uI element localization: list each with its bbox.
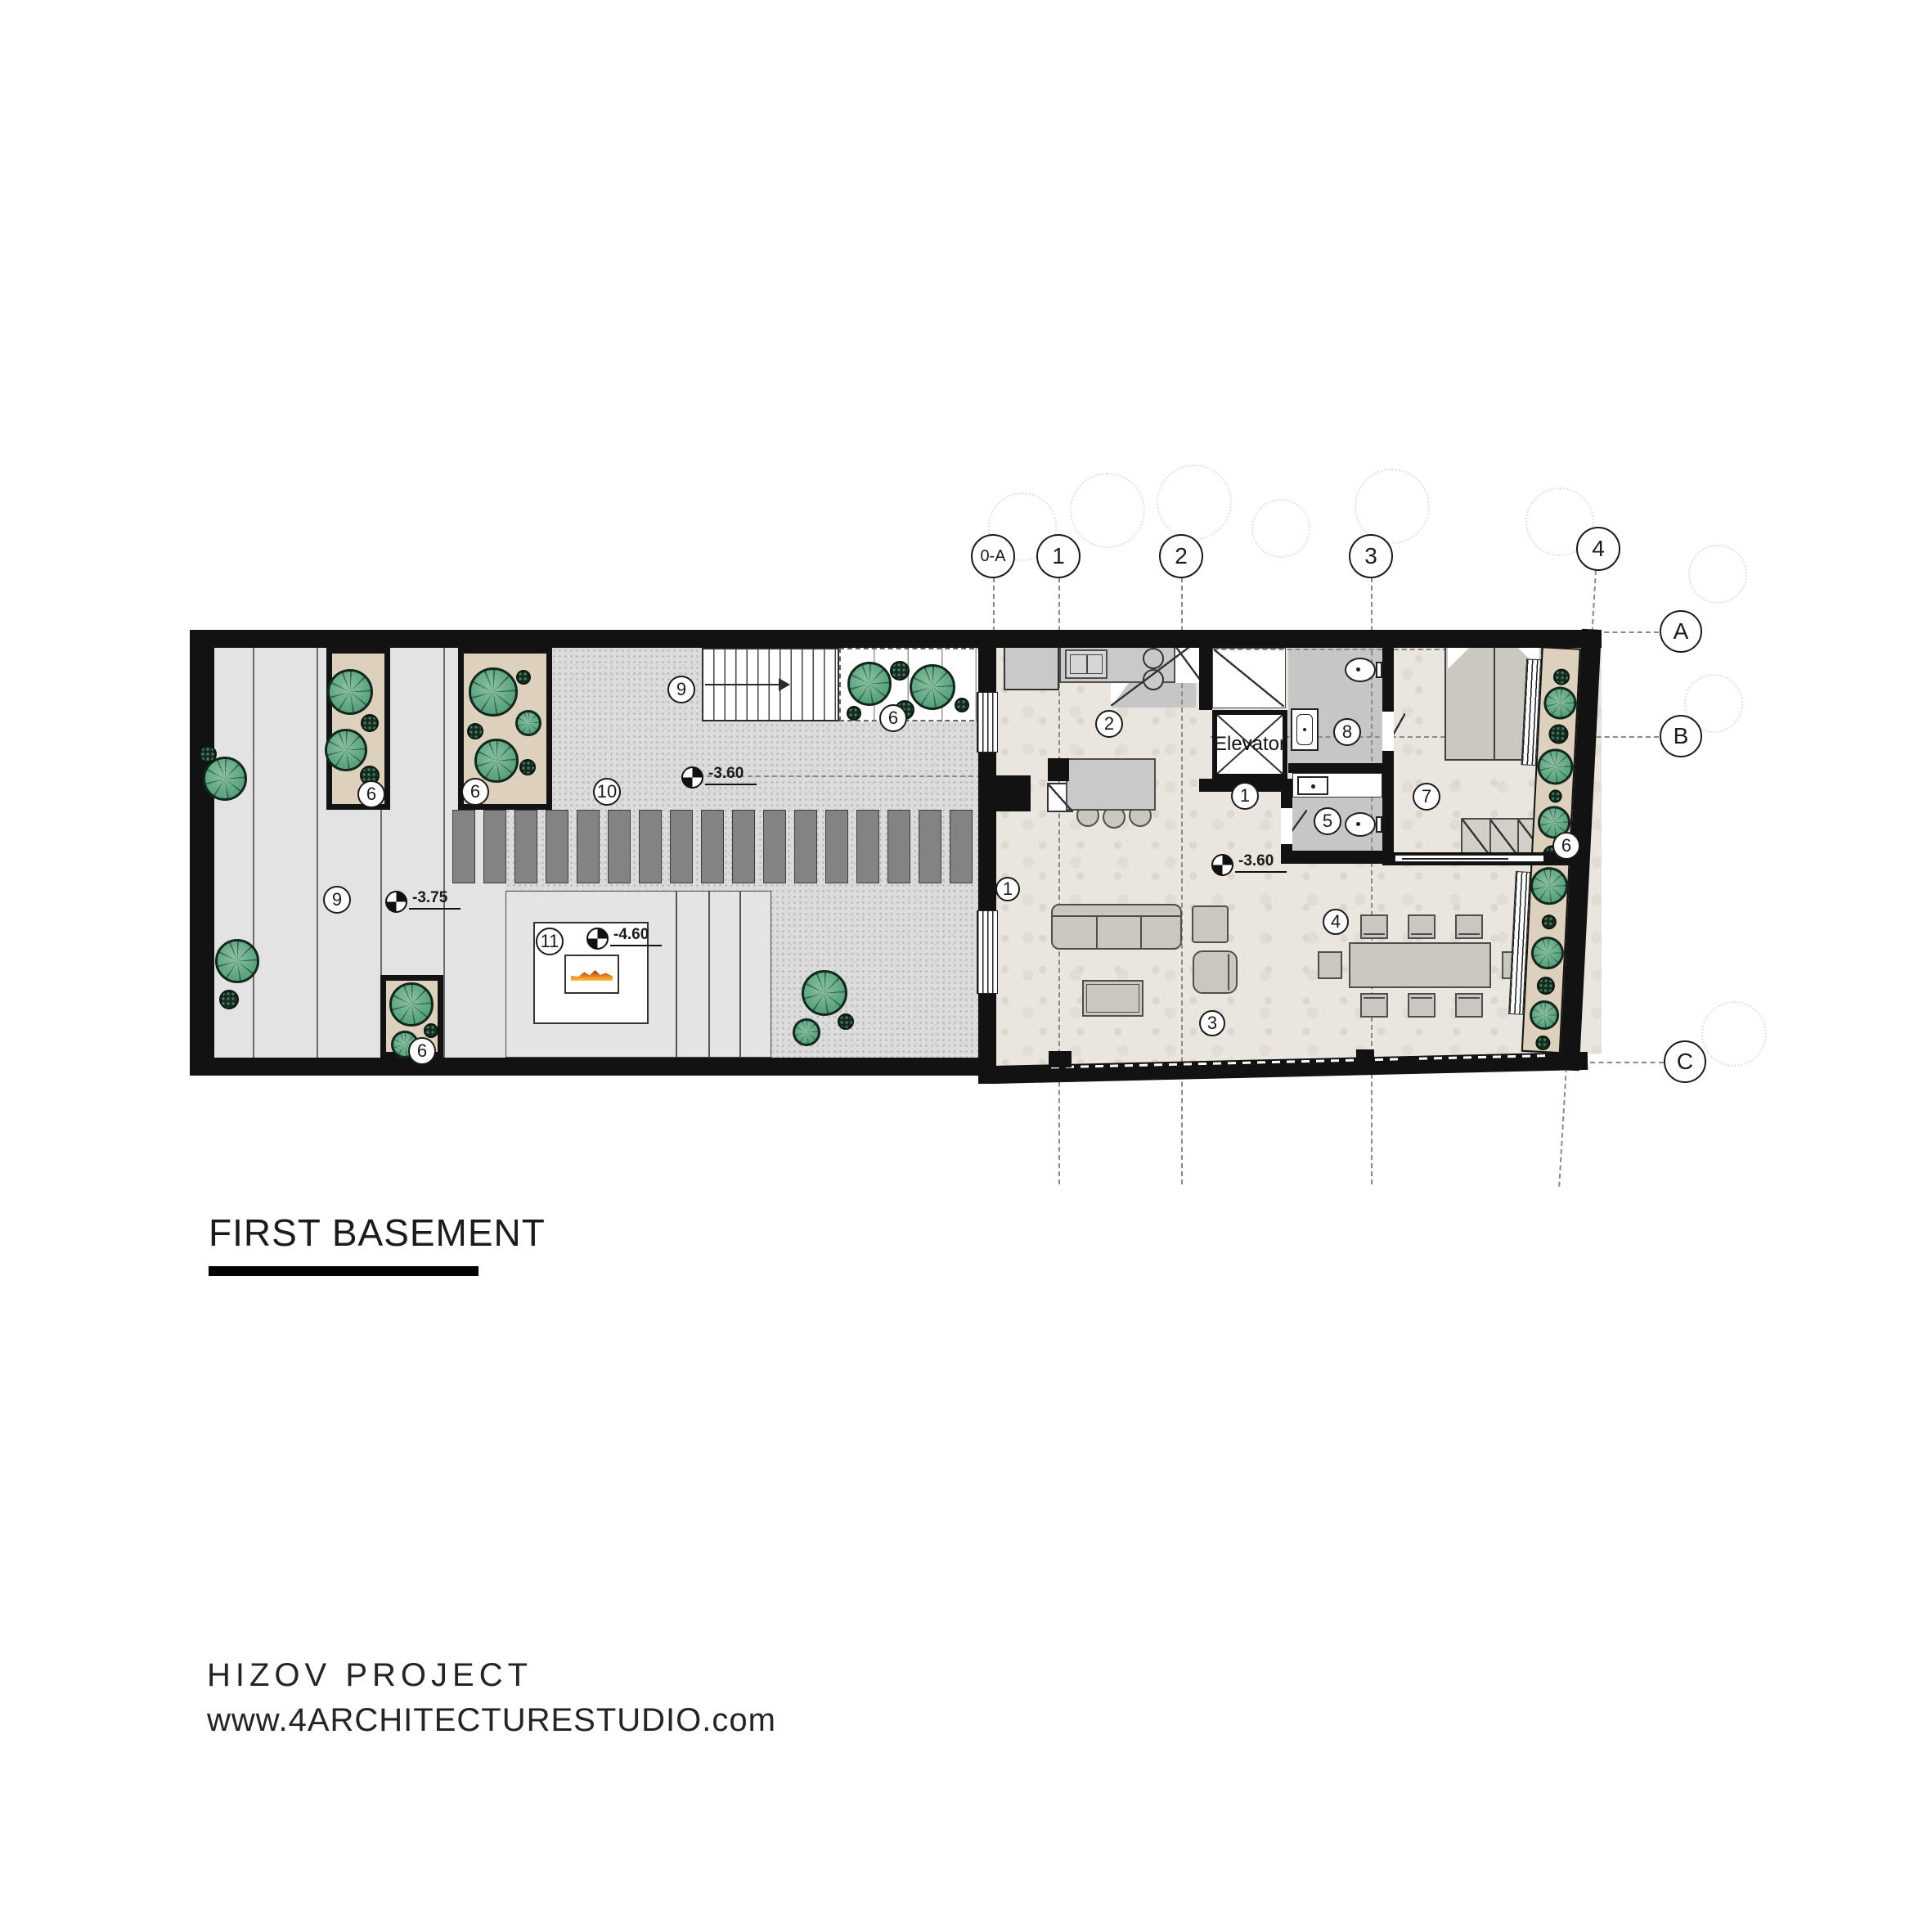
bush-icon [219,990,239,1009]
grid-bubble-right-A: A [1660,610,1702,653]
bush-icon [1548,724,1569,744]
ghost-tree-outline [1701,1001,1767,1067]
deck-bar [701,810,724,883]
terrace-strip-separator-0 [253,648,254,1058]
dining-chair-end-left [1318,951,1342,979]
footer-block: HIZOV PROJECT www.4ARCHITECTURESTUDIO.co… [207,1657,776,1739]
deck-bar [763,810,786,883]
bush-icon [1535,1036,1551,1051]
ghost-tree-outline [1251,499,1310,558]
stairs-direction-arrow [779,678,790,691]
area-label-wc: 5 [1314,807,1341,835]
deck-bar [514,810,537,883]
elevation-target-icon [681,766,703,789]
bush-icon [955,698,969,712]
bush-icon [519,759,536,775]
deck-bar [919,810,941,883]
area-label-planter-5: 6 [1552,832,1580,860]
deck-bar [483,810,506,883]
bush-icon [1548,789,1562,803]
dining-chair-top-3 [1455,914,1483,939]
tree-icon [1529,1000,1560,1031]
deck-bar [825,810,848,883]
terrace-window [977,692,998,753]
elevation-target-icon [1211,854,1233,876]
area-label-living: 3 [1199,1010,1225,1036]
terrace-strip-separator-3 [443,648,445,1058]
area-label-planter-3: 6 [408,1037,436,1065]
grid-bubble-top-0-A: 0-A [971,534,1015,578]
elevation-value-walkway: -3.75 [409,889,461,910]
area-label-kitchen: 2 [1095,710,1123,738]
deck-bar [452,810,475,883]
armchair-2 [1193,950,1238,994]
tree-icon [327,669,373,715]
elevation-value-living: -3.60 [1235,852,1287,873]
island-column [1048,758,1069,781]
dining-chair-top-1 [1360,914,1388,939]
bush-icon [1541,914,1557,930]
wc-door-gap [1281,808,1292,844]
elevation-value-fire-lounge: -4.60 [610,926,662,946]
dining-chair-bottom-2 [1408,993,1436,1018]
terrace-strip-separator-1 [317,648,318,1058]
tree-icon [474,739,519,783]
dining-chair-top-2 [1408,914,1436,939]
elevation-marker-fire-lounge: -4.60 [586,928,662,950]
toilet-icon-bath8 [1345,658,1382,682]
area-label-walkway: 9 [323,886,351,914]
deck-bar [732,810,755,883]
platform-step-line-1 [708,891,710,1058]
bush-icon [1553,668,1570,685]
area-label-planter-2: 6 [461,778,489,806]
diagonal-mark-1 [1214,649,1284,707]
dining-table [1349,942,1491,988]
tree-icon [910,664,955,710]
grid-bubble-top-3: 3 [1349,534,1393,578]
tree-icon [203,757,247,801]
elevation-marker-living: -3.60 [1211,854,1287,876]
area-label-garden-stairs: 9 [667,676,695,703]
ghost-tree-outline [1688,545,1747,604]
area-label-planter-1: 6 [357,780,385,808]
ghost-tree-outline [1355,469,1430,544]
outdoor-bottom-wall [190,1058,995,1076]
title-underline [209,1266,479,1276]
bush-icon [1536,977,1555,995]
tree-icon [802,970,847,1016]
platform-step-line-2 [739,891,741,1058]
area-label-gravel-court: 10 [593,778,621,806]
sink-icon-wc5 [1297,776,1328,795]
elevation-value-court: -3.60 [705,765,757,785]
deck-bar [577,810,600,883]
elevation-marker-walkway: -3.75 [385,891,461,913]
page-title: FIRST BASEMENT [209,1211,546,1255]
wc-bottom-wall [1281,851,1382,864]
armchair-1 [1192,905,1229,943]
drawing-title-block: FIRST BASEMENT [209,1211,546,1276]
toilet-icon-wc5 [1345,812,1382,837]
coffee-table [1082,980,1143,1017]
window-wall-pier-0 [1049,1051,1072,1067]
area-label-hall: 1 [1231,782,1259,810]
grid-bubble-right-C: C [1664,1040,1706,1083]
area-label-fire-lounge: 11 [536,928,564,955]
dining-chair-bottom-1 [1360,993,1388,1018]
tree-icon [847,662,892,706]
floor-plan-canvas: Elevator [0,0,1932,1932]
tree-icon [515,710,541,736]
deck-bar [950,810,973,883]
deck-bar [794,810,817,883]
grid-bubble-top-4: 4 [1576,527,1620,571]
elevation-marker-court: -3.60 [681,766,757,789]
area-label-bedroom: 7 [1413,783,1440,811]
bedroom-sliding-door [1395,855,1544,862]
deck-bar [639,810,662,883]
diagonal-mark-4 [1462,820,1489,854]
studio-website: www.4ARCHITECTURESTUDIO.com [207,1702,776,1739]
left-wall [190,630,214,1076]
area-label-entry-door: 1 [995,877,1020,901]
grid-bubble-top-2: 2 [1159,534,1203,578]
grid-line-horizontal-3 [1590,1062,1664,1063]
ghost-tree-outline [1157,465,1232,540]
bush-icon [199,745,217,763]
platform-step-line-0 [676,891,677,1058]
bush-icon [361,714,379,732]
kitchen-sink [1065,649,1108,679]
kitchen-island [1066,758,1156,811]
pillow-fold-left [1448,648,1469,669]
sofa [1051,904,1182,950]
bush-icon [424,1023,438,1038]
grid-line-vertical-0 [993,577,995,631]
elevation-target-icon [586,928,609,950]
deck-bar [670,810,693,883]
diagonal-mark-2 [1111,642,1196,706]
terrace-sliding-door [977,910,998,994]
sink-icon-bath8 [1291,708,1319,751]
area-label-planter-4: 6 [879,704,907,732]
deck-bar [546,810,568,883]
grid-bubble-right-B: B [1660,715,1702,757]
tree-icon [1536,748,1574,785]
grid-bubble-top-1: 1 [1036,534,1081,578]
deck-bar [608,810,631,883]
bush-icon [847,706,861,721]
bush-icon [890,661,910,681]
tree-icon [793,1018,820,1046]
deck-bar [856,810,879,883]
area-label-bath: 8 [1333,718,1361,746]
window-wall-pier-1 [1356,1049,1374,1064]
tree-icon [325,729,367,771]
bath-wc-divider [1288,763,1382,773]
diagonal-mark-3 [1047,783,1073,812]
bush-icon [467,723,483,739]
tree-icon [215,939,259,983]
refrigerator [1004,643,1059,690]
divider-column [978,775,1031,811]
tree-icon [1543,686,1577,721]
bush-icon [516,670,531,685]
bush-icon [838,1013,854,1030]
ghost-tree-outline [1070,473,1145,548]
tree-icon [1530,866,1569,905]
kitchen-stair-wall [1199,630,1212,710]
stairs-direction-line [705,684,784,685]
area-label-dining: 4 [1323,909,1349,935]
bath-door-gap [1382,712,1394,751]
project-name: HIZOV PROJECT [207,1657,776,1694]
tree-icon [1530,936,1565,970]
elevator-label: Elevator [1214,733,1286,756]
tree-icon [389,982,434,1027]
elevation-target-icon [385,891,407,913]
dining-chair-bottom-3 [1455,993,1483,1018]
deck-bar [887,810,910,883]
elevator-shaft: Elevator [1212,710,1287,779]
tree-icon [469,667,518,717]
